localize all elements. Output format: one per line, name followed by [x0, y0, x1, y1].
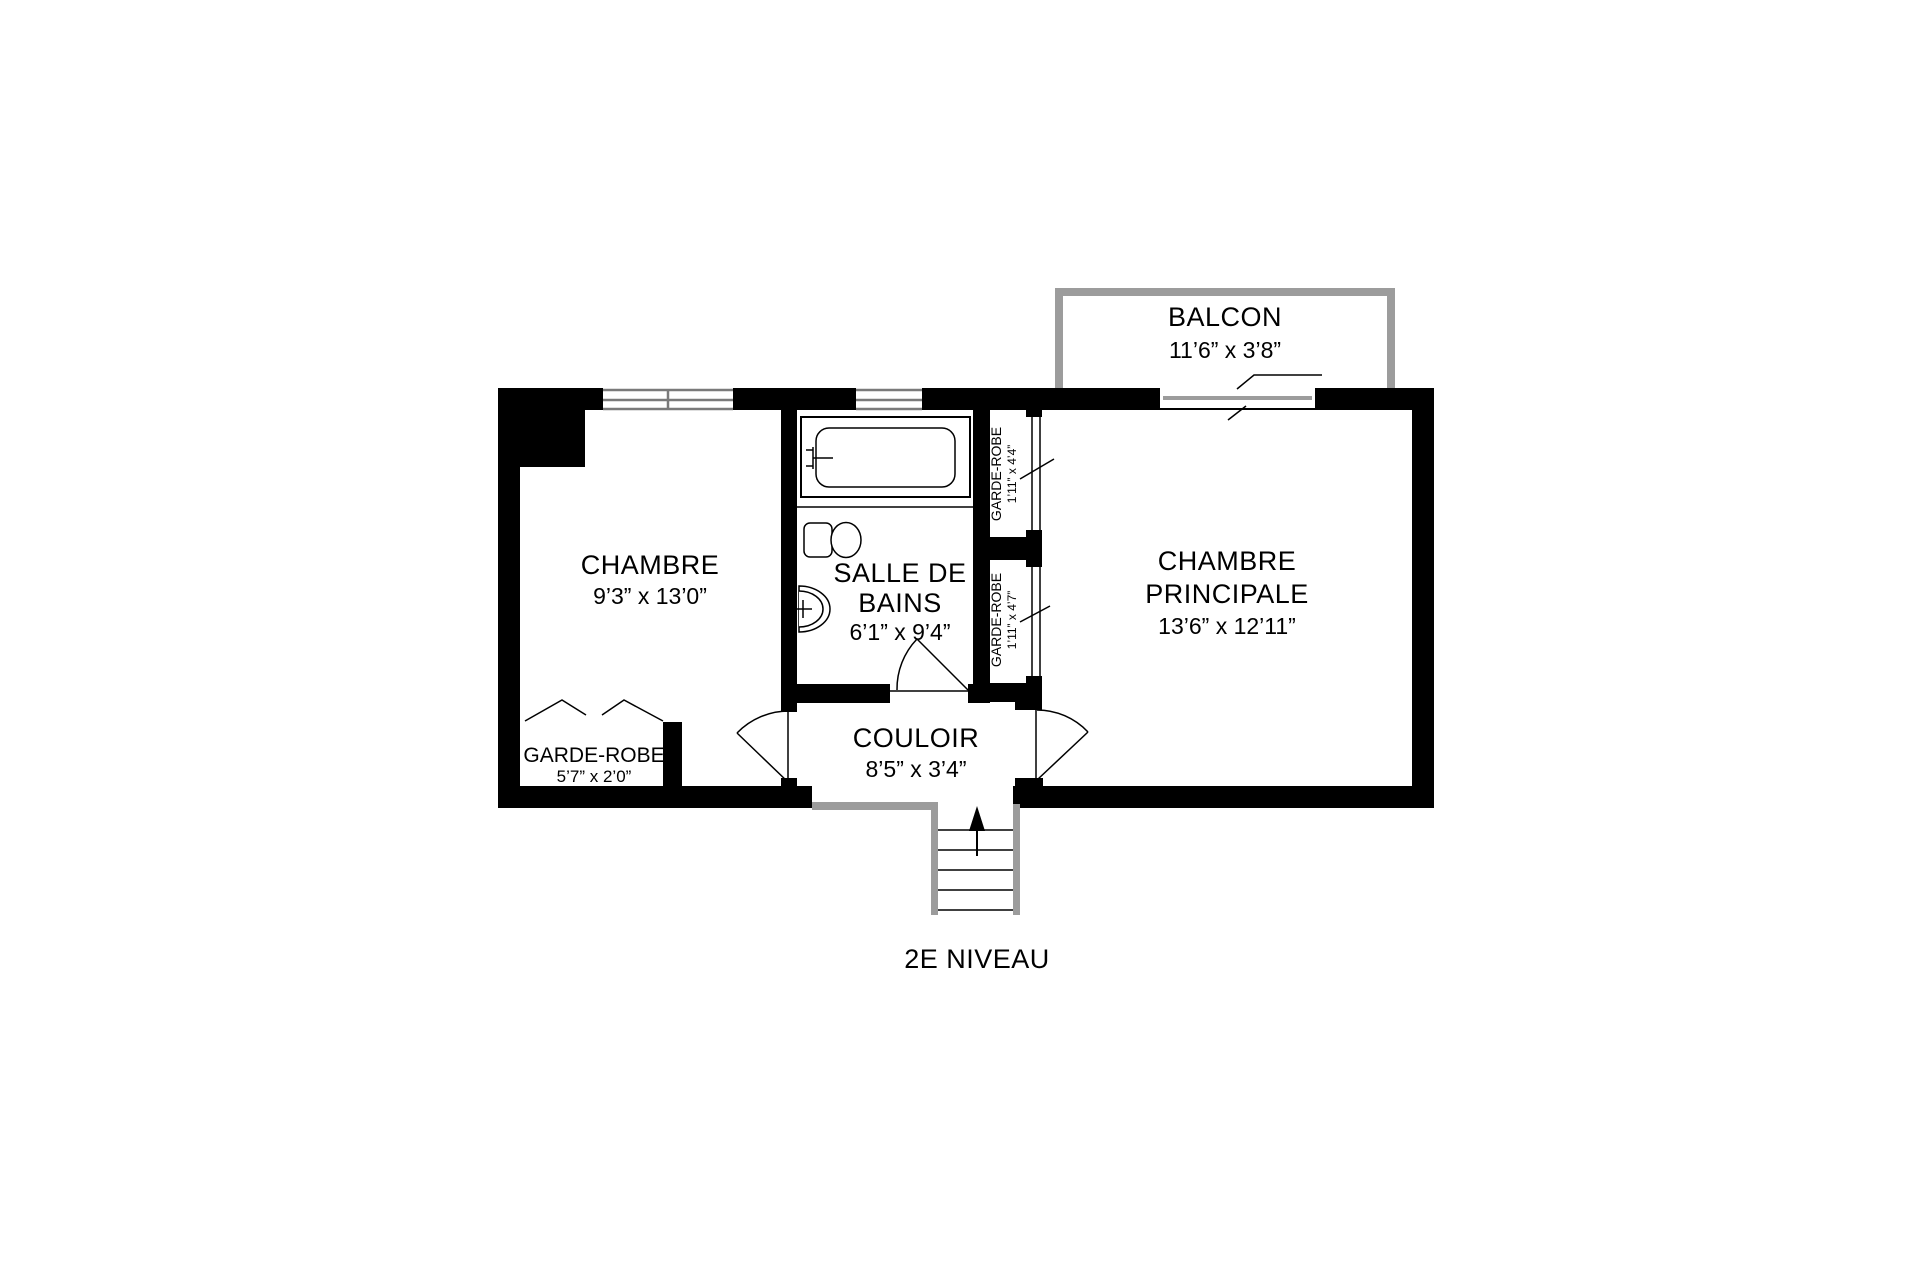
bathroom-window	[856, 390, 922, 409]
bathtub	[797, 417, 973, 507]
floor-plan-drawing: BALCON 11’6” x 3’8” CHAMBRE 9’3” x 13’0”…	[0, 0, 1920, 1280]
closet-door-top	[1020, 416, 1054, 530]
top-closet-dims: 1’11” x 4’4”	[1005, 445, 1019, 503]
toilet	[804, 523, 861, 558]
staircase	[812, 802, 1020, 915]
hallway-dims: 8’5” x 3’4”	[866, 756, 967, 782]
balcony-label: BALCON	[1168, 302, 1282, 332]
bedroom-label-group: CHAMBRE 9’3” x 13’0”	[581, 550, 720, 609]
floor-plan-page: BALCON 11’6” x 3’8” CHAMBRE 9’3” x 13’0”…	[0, 0, 1920, 1280]
bathroom-label-line2: BAINS	[858, 588, 942, 618]
bathroom-label-group: SALLE DE BAINS 6’1” x 9’4”	[833, 558, 966, 645]
balcony-dims: 11’6” x 3’8”	[1169, 337, 1281, 363]
balcony-sliding-door	[1160, 375, 1322, 420]
bathroom-label-line1: SALLE DE	[833, 558, 966, 588]
closet-door-middle	[1020, 566, 1050, 676]
bedroom-window	[603, 389, 733, 410]
master-bedroom-label-line2: PRINCIPALE	[1145, 579, 1309, 609]
top-closet-label-group: GARDE-ROBE 1’11” x 4’4”	[988, 427, 1019, 521]
floor-level-title: 2E NIVEAU	[904, 944, 1050, 974]
bedroom-closet-bifold-doors	[525, 700, 663, 721]
top-closet-label: GARDE-ROBE	[988, 427, 1004, 521]
bedroom-closet-dims: 5’7” x 2’0”	[557, 767, 632, 786]
bedroom-closet-label: GARDE-ROBE	[523, 744, 664, 767]
bathroom-dims: 6’1” x 9’4”	[850, 619, 951, 645]
bedroom-dims: 9’3” x 13’0”	[593, 583, 707, 609]
hallway-label-group: COULOIR 8’5” x 3’4”	[853, 723, 980, 782]
bedroom-door	[737, 711, 789, 783]
master-bedroom-dims: 13’6” x 12’11”	[1158, 613, 1296, 639]
bedroom-closet-label-group: GARDE-ROBE 5’7” x 2’0”	[523, 744, 664, 786]
master-bedroom-door	[1036, 710, 1088, 780]
master-bedroom-label-line1: CHAMBRE	[1158, 546, 1297, 576]
sink	[793, 586, 830, 632]
bathroom-door	[890, 639, 968, 691]
middle-closet-label: GARDE-ROBE	[988, 573, 1004, 667]
bedroom-label: CHAMBRE	[581, 550, 720, 580]
stairs-up-arrow	[969, 806, 985, 856]
middle-closet-dims: 1’11” x 4’7”	[1005, 591, 1019, 649]
balcony-label-group: BALCON 11’6” x 3’8”	[1168, 302, 1282, 363]
hallway-label: COULOIR	[853, 723, 980, 753]
middle-closet-label-group: GARDE-ROBE 1’11” x 4’7”	[988, 573, 1019, 667]
master-bedroom-label-group: CHAMBRE PRINCIPALE 13’6” x 12’11”	[1145, 546, 1309, 639]
